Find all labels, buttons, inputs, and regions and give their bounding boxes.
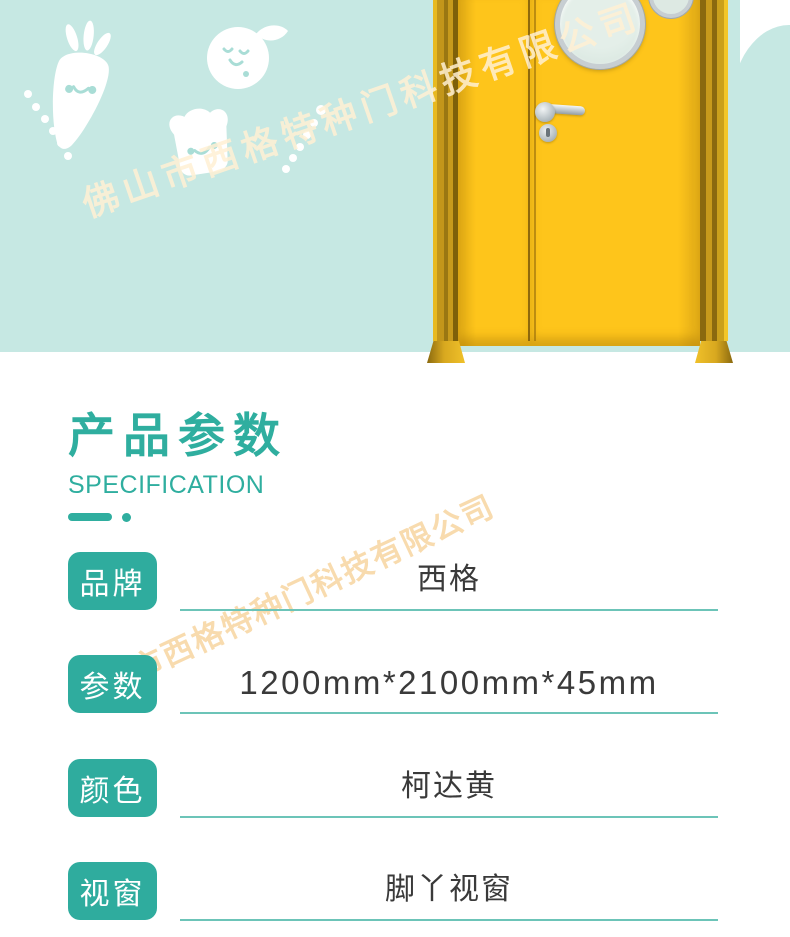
row-value-wrap: 柯达黄	[180, 759, 718, 817]
door-lock-icon	[539, 124, 557, 142]
door-handle-rosette	[535, 102, 555, 122]
row-underline	[180, 609, 718, 611]
door-groove	[528, 0, 530, 341]
door-frame-right	[700, 0, 728, 341]
row-value-size: 1200mm*2100mm*45mm	[180, 663, 718, 703]
table-row: 参数 1200mm*2100mm*45mm	[68, 655, 718, 715]
door-groove	[534, 0, 536, 341]
row-label-brand: 品牌	[68, 552, 157, 610]
table-row: 视窗 脚丫视窗	[68, 862, 718, 922]
row-value-brand: 西格	[180, 562, 718, 598]
row-label-color: 颜色	[68, 759, 157, 817]
door-frame-left	[433, 0, 458, 341]
product-spec-page: 佛山市西格特种门科技有限公司 佛山市西格特种门科技有限公司 产品参数 SPECI…	[0, 0, 790, 937]
table-row: 品牌 西格	[68, 552, 718, 612]
row-value-window: 脚丫视窗	[180, 872, 718, 908]
row-value-wrap: 1200mm*2100mm*45mm	[180, 655, 718, 713]
row-value-wrap: 西格	[180, 552, 718, 610]
row-underline	[180, 712, 718, 714]
table-row: 颜色 柯达黄	[68, 759, 718, 819]
row-underline	[180, 816, 718, 818]
product-door-image	[427, 0, 733, 365]
row-value-color: 柯达黄	[180, 769, 718, 805]
row-value-wrap: 脚丫视窗	[180, 862, 718, 920]
door-frame-foot	[695, 341, 733, 363]
row-label-size: 参数	[68, 655, 157, 713]
row-label-window: 视窗	[68, 862, 157, 920]
door-leaf-narrow	[458, 0, 531, 346]
door-frame-foot	[427, 341, 465, 363]
row-underline	[180, 919, 718, 921]
